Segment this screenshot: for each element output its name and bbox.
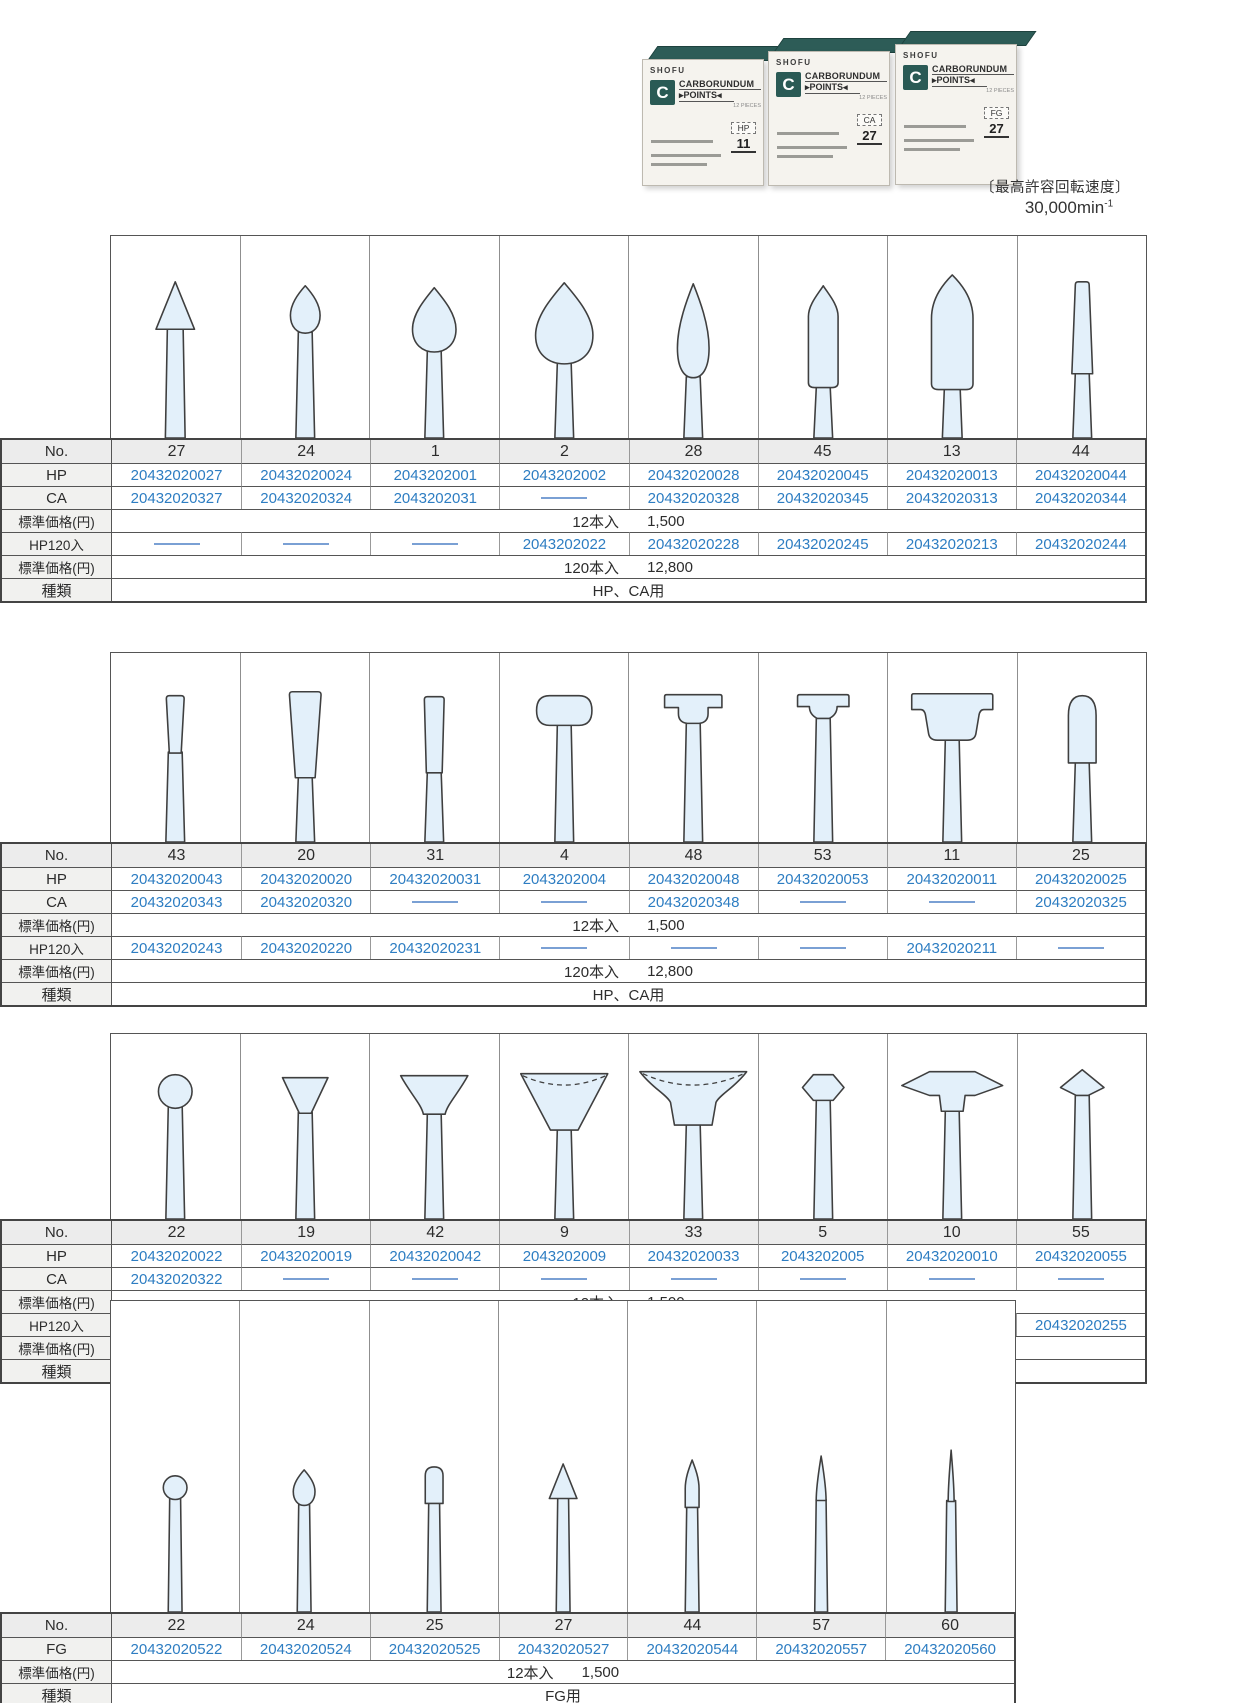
row-label: HP120入 xyxy=(2,532,112,555)
dash-placeholder xyxy=(241,1267,370,1290)
column-number: 44 xyxy=(627,1614,756,1637)
box-title: CARBORUNDUM ▸POINTS◂ 12 PIECES xyxy=(805,71,887,101)
dash-placeholder xyxy=(1016,936,1145,959)
column-number: 13 xyxy=(887,440,1016,463)
product-code-link[interactable]: 20432020324 xyxy=(241,486,370,509)
column-number: 19 xyxy=(241,1221,370,1244)
type-number: 27 xyxy=(857,128,882,145)
product-code-link[interactable]: 20432020243 xyxy=(112,936,241,959)
column-number: 22 xyxy=(112,1614,241,1637)
dash-placeholder xyxy=(499,486,628,509)
bur-shape-inv-cone-small xyxy=(240,1034,370,1219)
type-number: 11 xyxy=(731,136,756,153)
price-note: 120本入12,800 xyxy=(112,555,1145,578)
dash-icon xyxy=(1058,947,1104,949)
type-label-box: FG 27 xyxy=(984,107,1009,138)
box-piece-count: 12 PIECES xyxy=(932,88,1014,94)
table-hp-ca-1: No.27241228451344HP204320200272043202002… xyxy=(0,235,1147,603)
type-label: CA xyxy=(857,114,882,126)
column-number: 57 xyxy=(756,1614,885,1637)
product-code-link[interactable]: 20432020245 xyxy=(758,532,887,555)
table-fg: No.22242527445760FG204320205222043202052… xyxy=(0,1300,1016,1703)
box-front: SHOFU C CARBORUNDUM ▸POINTS◂ 12 PIECES H… xyxy=(642,59,764,186)
dash-icon xyxy=(541,1278,587,1280)
max-speed-note: 〔最高許容回転速度〕 30,000min-1 xyxy=(980,176,1158,218)
product-code-link[interactable]: 20432020019 xyxy=(241,1244,370,1267)
bur-shape-dome-cylinder xyxy=(1017,653,1147,842)
box-title-line2: ▸POINTS◂ xyxy=(679,90,734,102)
note-part: 1,500 xyxy=(647,513,685,530)
row-label: 標準価格(円) xyxy=(2,913,112,936)
data-rows: No.27241228451344HP204320200272043202002… xyxy=(0,438,1147,603)
dash-placeholder xyxy=(758,1267,887,1290)
bur-shape-cup-wide xyxy=(628,1034,758,1219)
product-code-link[interactable]: 2043202005 xyxy=(758,1244,887,1267)
dash-placeholder xyxy=(499,1267,628,1290)
box-title-line2: ▸POINTS◂ xyxy=(805,82,860,94)
product-code-link[interactable]: 20432020220 xyxy=(241,936,370,959)
fine-print-line xyxy=(777,132,839,135)
table-hp-ca-2: No.432031448531125HP20432020043204320200… xyxy=(0,652,1147,1007)
product-code-link[interactable]: 20432020027 xyxy=(112,463,241,486)
product-code-link[interactable]: 20432020320 xyxy=(241,890,370,913)
product-code-link[interactable]: 20432020033 xyxy=(629,1244,758,1267)
column-number: 5 xyxy=(758,1221,887,1244)
bur-shape-bud-small xyxy=(239,1301,368,1612)
logo-c-icon: C xyxy=(903,65,928,90)
note-part: 12本入 xyxy=(572,511,619,532)
bur-shape-taper-large xyxy=(240,653,370,842)
dash-placeholder xyxy=(758,890,887,913)
column-number: 28 xyxy=(629,440,758,463)
bur-shape-spear xyxy=(1017,1034,1147,1219)
product-code-link[interactable]: 20432020022 xyxy=(112,1244,241,1267)
product-code-link[interactable]: 2043202022 xyxy=(499,532,628,555)
fine-print-line xyxy=(777,146,847,149)
dash-placeholder xyxy=(1016,1267,1145,1290)
brand-text: SHOFU xyxy=(903,51,939,60)
column-number: 22 xyxy=(112,1221,241,1244)
dash-placeholder xyxy=(370,532,499,555)
product-code-link[interactable]: 2043202031 xyxy=(370,486,499,509)
product-code-link[interactable]: 20432020231 xyxy=(370,936,499,959)
type-note: FG用 xyxy=(112,1683,1014,1703)
column-number: 44 xyxy=(1016,440,1145,463)
product-code-link[interactable]: 20432020345 xyxy=(758,486,887,509)
price-note: 12本入1,500 xyxy=(112,1660,1014,1683)
dash-icon xyxy=(412,1278,458,1280)
product-code-link[interactable]: 20432020025 xyxy=(1016,867,1145,890)
row-label: No. xyxy=(2,1221,112,1244)
product-code-link[interactable]: 20432020048 xyxy=(629,867,758,890)
bur-shape-inv-cone xyxy=(369,1034,499,1219)
bur-shape-flame-long xyxy=(628,236,758,438)
product-code-link[interactable]: 20432020011 xyxy=(887,867,1016,890)
note-part: 1,500 xyxy=(647,917,685,934)
product-code-link[interactable]: 20432020043 xyxy=(112,867,241,890)
speed-exponent: -1 xyxy=(1104,198,1113,209)
shape-row xyxy=(110,1033,1147,1219)
dash-placeholder xyxy=(370,890,499,913)
product-code-link[interactable]: 20432020325 xyxy=(1016,890,1145,913)
dash-icon xyxy=(283,1278,329,1280)
product-code-link[interactable]: 20432020244 xyxy=(1016,532,1145,555)
product-code-link[interactable]: 20432020024 xyxy=(241,463,370,486)
box-title-line1: CARBORUNDUM xyxy=(932,64,1014,75)
bur-shape-hexagon xyxy=(758,1034,888,1219)
column-number: 10 xyxy=(887,1221,1016,1244)
box-title: CARBORUNDUM ▸POINTS◂ 12 PIECES xyxy=(932,64,1014,94)
column-number: 31 xyxy=(370,844,499,867)
product-box-fg: SHOFU C CARBORUNDUM ▸POINTS◂ 12 PIECES F… xyxy=(895,31,1017,185)
note-part: HP、CA用 xyxy=(593,984,665,1005)
logo-c-icon: C xyxy=(776,72,801,97)
note-part: 120本入 xyxy=(564,961,619,982)
bur-shape-knife-wheel xyxy=(887,1034,1017,1219)
column-number: 33 xyxy=(629,1221,758,1244)
row-label: No. xyxy=(2,1614,112,1637)
data-rows: No.22242527445760FG204320205222043202052… xyxy=(0,1612,1016,1703)
product-code-link[interactable]: 20432020344 xyxy=(1016,486,1145,509)
box-front: SHOFU C CARBORUNDUM ▸POINTS◂ 12 PIECES C… xyxy=(768,51,890,186)
catalog-page: SHOFU C CARBORUNDUM ▸POINTS◂ 12 PIECES H… xyxy=(0,0,1250,1703)
type-note: HP、CA用 xyxy=(112,578,1145,601)
product-code-link[interactable]: 20432020010 xyxy=(887,1244,1016,1267)
dash-icon xyxy=(671,947,717,949)
column-number: 24 xyxy=(241,440,370,463)
bur-shape-flat-tee xyxy=(758,653,888,842)
product-code-link[interactable]: 20432020327 xyxy=(112,486,241,509)
bur-shape-wide-tee xyxy=(887,653,1017,842)
bur-shape-cup-cone xyxy=(499,1034,629,1219)
fine-print-line xyxy=(651,140,713,143)
dash-placeholder xyxy=(112,532,241,555)
note-part: 1,500 xyxy=(582,1664,620,1681)
dash-icon xyxy=(800,947,846,949)
note-part: 12本入 xyxy=(507,1662,554,1683)
price-note: 120本入12,800 xyxy=(112,959,1145,982)
product-code-link[interactable]: 20432020213 xyxy=(887,532,1016,555)
type-label: FG xyxy=(984,107,1009,119)
bur-shape-taper-cylinder xyxy=(1017,236,1147,438)
row-label: 標準価格(円) xyxy=(2,1660,112,1683)
column-number: 27 xyxy=(112,440,241,463)
product-code-link[interactable]: 20432020524 xyxy=(241,1637,370,1660)
row-label: 標準価格(円) xyxy=(2,509,112,532)
row-label: 標準価格(円) xyxy=(2,555,112,578)
column-number: 9 xyxy=(499,1221,628,1244)
bur-shape-bullet xyxy=(758,236,888,438)
dash-icon xyxy=(541,901,587,903)
box-title-line1: CARBORUNDUM xyxy=(679,79,761,90)
bur-shape-round-cylinder-small xyxy=(369,1301,498,1612)
bur-shape-cylinder xyxy=(369,653,499,842)
type-note: HP、CA用 xyxy=(112,982,1145,1005)
row-label: HP xyxy=(2,1244,112,1267)
shape-row xyxy=(110,652,1147,842)
shape-row xyxy=(110,235,1147,438)
fine-print-line xyxy=(651,163,707,166)
column-number: 48 xyxy=(629,844,758,867)
product-code-link[interactable]: 20432020053 xyxy=(758,867,887,890)
dash-icon xyxy=(800,901,846,903)
note-part: HP、CA用 xyxy=(593,580,665,601)
column-number: 42 xyxy=(370,1221,499,1244)
box-piece-count: 12 PIECES xyxy=(805,95,887,101)
row-label: No. xyxy=(2,440,112,463)
row-label: 種類 xyxy=(2,1683,112,1703)
bur-shape-pear-large xyxy=(499,236,629,438)
column-number: 25 xyxy=(370,1614,499,1637)
column-number: 2 xyxy=(499,440,628,463)
dash-icon xyxy=(283,543,329,545)
column-number: 11 xyxy=(887,844,1016,867)
product-code-link[interactable]: 20432020313 xyxy=(887,486,1016,509)
note-part: FG用 xyxy=(545,1685,581,1703)
column-number: 4 xyxy=(499,844,628,867)
product-code-link[interactable]: 20432020228 xyxy=(629,532,758,555)
box-title-line2: ▸POINTS◂ xyxy=(932,75,987,87)
column-number: 27 xyxy=(499,1614,628,1637)
note-part: 12,800 xyxy=(647,559,693,576)
data-rows: No.432031448531125HP20432020043204320200… xyxy=(0,842,1147,1007)
product-code-link[interactable]: 20432020527 xyxy=(499,1637,628,1660)
column-number: 20 xyxy=(241,844,370,867)
bur-shape-taper-point-small xyxy=(756,1301,885,1612)
product-code-link[interactable]: 2043202009 xyxy=(499,1244,628,1267)
row-label: FG xyxy=(2,1637,112,1660)
bur-shape-cone-small xyxy=(498,1301,627,1612)
box-piece-count: 12 PIECES xyxy=(679,103,761,109)
type-label-box: HP 11 xyxy=(731,122,756,153)
product-code-link[interactable]: 20432020557 xyxy=(756,1637,885,1660)
column-number: 55 xyxy=(1016,1221,1145,1244)
product-photo: SHOFU C CARBORUNDUM ▸POINTS◂ 12 PIECES H… xyxy=(640,28,1032,194)
dash-icon xyxy=(412,901,458,903)
fine-print-line xyxy=(904,125,966,128)
dash-placeholder xyxy=(758,936,887,959)
product-code-link[interactable]: 20432020020 xyxy=(241,867,370,890)
row-label: No. xyxy=(2,844,112,867)
price-note: 12本入1,500 xyxy=(112,913,1145,936)
dash-icon xyxy=(412,543,458,545)
shape-row xyxy=(110,1300,1016,1612)
row-label: HP xyxy=(2,463,112,486)
bur-shape-ball-small xyxy=(111,1301,239,1612)
type-label: HP xyxy=(731,122,756,134)
product-code-link[interactable]: 20432020328 xyxy=(629,486,758,509)
product-code-link[interactable]: 2043202001 xyxy=(370,463,499,486)
bur-shape-flame-small xyxy=(627,1301,756,1612)
box-title: CARBORUNDUM ▸POINTS◂ 12 PIECES xyxy=(679,79,761,109)
row-label: HP120入 xyxy=(2,936,112,959)
max-speed-label: 〔最高許容回転速度〕 xyxy=(980,176,1158,197)
bur-shape-cone-point xyxy=(111,236,240,438)
row-label: CA xyxy=(2,486,112,509)
dash-icon xyxy=(929,1278,975,1280)
dash-placeholder xyxy=(499,936,628,959)
product-code-link[interactable]: 2043202004 xyxy=(499,867,628,890)
product-code-link[interactable]: 20432020013 xyxy=(887,463,1016,486)
fine-print-line xyxy=(904,148,960,151)
product-code-link[interactable]: 20432020255 xyxy=(1016,1313,1145,1336)
bur-shape-pear-small xyxy=(369,236,499,438)
product-code-link[interactable]: 20432020348 xyxy=(629,890,758,913)
product-code-link[interactable]: 20432020322 xyxy=(112,1267,241,1290)
row-label: HP xyxy=(2,867,112,890)
product-code-link[interactable]: 20432020525 xyxy=(370,1637,499,1660)
bur-shape-taper-small xyxy=(111,653,240,842)
product-code-link[interactable]: 20432020031 xyxy=(370,867,499,890)
dash-placeholder xyxy=(499,890,628,913)
column-number: 60 xyxy=(885,1614,1014,1637)
bur-shape-needle-small xyxy=(886,1301,1015,1612)
logo-c-icon: C xyxy=(650,80,675,105)
column-number: 53 xyxy=(758,844,887,867)
dash-placeholder xyxy=(241,532,370,555)
product-code-link[interactable]: 20432020544 xyxy=(627,1637,756,1660)
product-code-link[interactable]: 20432020045 xyxy=(758,463,887,486)
dash-placeholder xyxy=(887,890,1016,913)
product-code-link[interactable]: 20432020055 xyxy=(1016,1244,1145,1267)
bur-shape-bud xyxy=(240,236,370,438)
product-box-ca: SHOFU C CARBORUNDUM ▸POINTS◂ 12 PIECES C… xyxy=(768,38,890,186)
fine-print-line xyxy=(651,154,721,157)
type-label-box: CA 27 xyxy=(857,114,882,145)
column-number: 1 xyxy=(370,440,499,463)
column-number: 24 xyxy=(241,1614,370,1637)
dash-icon xyxy=(541,947,587,949)
dash-icon xyxy=(929,901,975,903)
row-label: CA xyxy=(2,890,112,913)
dash-icon xyxy=(154,543,200,545)
bur-shape-pill-wheel xyxy=(499,653,629,842)
product-code-link[interactable]: 20432020522 xyxy=(112,1637,241,1660)
box-title-line1: CARBORUNDUM xyxy=(805,71,887,82)
dash-placeholder xyxy=(629,1267,758,1290)
dash-placeholder xyxy=(887,1267,1016,1290)
product-code-link[interactable]: 20432020343 xyxy=(112,890,241,913)
product-code-link[interactable]: 2043202002 xyxy=(499,463,628,486)
dash-placeholder xyxy=(629,936,758,959)
bur-shape-ball xyxy=(111,1034,240,1219)
box-front: SHOFU C CARBORUNDUM ▸POINTS◂ 12 PIECES F… xyxy=(895,44,1017,185)
price-note: 12本入1,500 xyxy=(112,509,1145,532)
fine-print-line xyxy=(904,139,974,142)
type-number: 27 xyxy=(984,121,1009,138)
bur-shape-torpedo xyxy=(887,236,1017,438)
product-box-hp: SHOFU C CARBORUNDUM ▸POINTS◂ 12 PIECES H… xyxy=(642,46,764,186)
dash-icon xyxy=(671,1278,717,1280)
dash-icon xyxy=(541,497,587,499)
product-code-link[interactable]: 20432020044 xyxy=(1016,463,1145,486)
dash-icon xyxy=(800,1278,846,1280)
product-code-link[interactable]: 20432020211 xyxy=(887,936,1016,959)
dash-placeholder xyxy=(370,1267,499,1290)
note-part: 12本入 xyxy=(572,915,619,936)
row-label: 種類 xyxy=(2,578,112,601)
dash-icon xyxy=(1058,1278,1104,1280)
row-label: 標準価格(円) xyxy=(2,959,112,982)
column-number: 45 xyxy=(758,440,887,463)
note-part: 12,800 xyxy=(647,963,693,980)
product-code-link[interactable]: 20432020028 xyxy=(629,463,758,486)
product-code-link[interactable]: 20432020560 xyxy=(885,1637,1014,1660)
speed-number: 30,000min xyxy=(1025,198,1104,217)
column-number: 43 xyxy=(112,844,241,867)
row-label: 種類 xyxy=(2,982,112,1005)
bur-shape-step-tee xyxy=(628,653,758,842)
product-code-link[interactable]: 20432020042 xyxy=(370,1244,499,1267)
brand-text: SHOFU xyxy=(650,66,686,75)
fine-print-line xyxy=(777,155,833,158)
max-speed-value: 30,000min-1 xyxy=(980,198,1158,218)
column-number: 25 xyxy=(1016,844,1145,867)
note-part: 120本入 xyxy=(564,557,619,578)
brand-text: SHOFU xyxy=(776,58,812,67)
row-label: CA xyxy=(2,1267,112,1290)
